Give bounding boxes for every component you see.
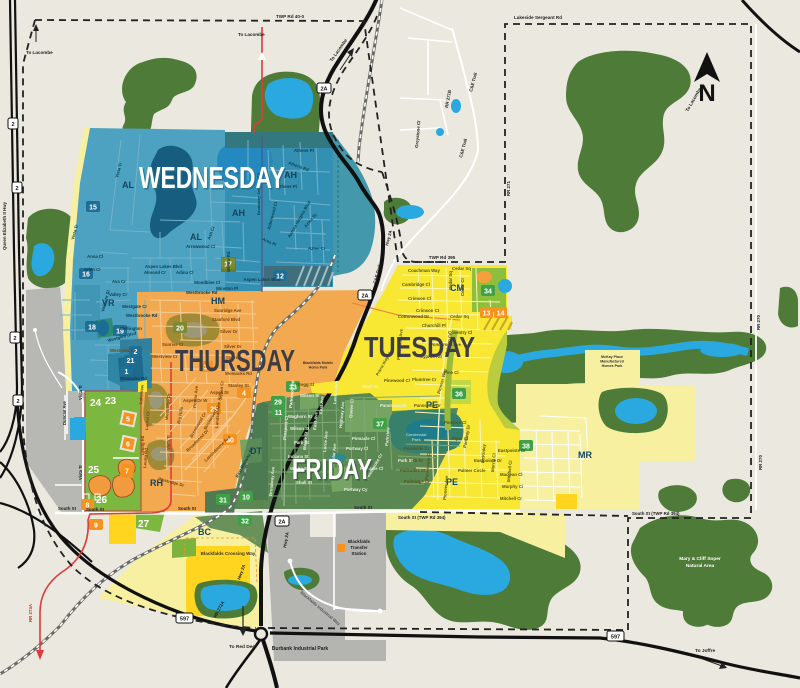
svg-text:Silver Dr: Silver Dr	[220, 329, 238, 334]
svg-text:Wilson St: Wilson St	[290, 426, 310, 431]
svg-text:597: 597	[180, 617, 189, 623]
svg-text:Crimson Cl: Crimson Cl	[408, 296, 431, 301]
svg-text:Portway Cl: Portway Cl	[346, 446, 368, 451]
svg-text:Cottonwood Dr: Cottonwood Dr	[398, 314, 429, 319]
svg-text:To Lacombe: To Lacombe	[238, 32, 265, 37]
svg-text:27: 27	[138, 519, 150, 530]
svg-text:South St: South St	[58, 506, 77, 511]
svg-text:Coachman Way: Coachman Way	[408, 268, 440, 273]
svg-text:20: 20	[176, 326, 184, 333]
svg-text:Cambridge Cl: Cambridge Cl	[402, 282, 430, 287]
svg-text:34: 34	[484, 289, 492, 296]
svg-text:Anna Cl: Anna Cl	[87, 254, 103, 259]
svg-text:Cedar Sq: Cedar Sq	[452, 266, 471, 271]
svg-text:TWP Rd 395: TWP Rd 395	[429, 255, 456, 260]
svg-text:Lakeside Sergeant Rd: Lakeside Sergeant Rd	[514, 15, 562, 20]
svg-text:Wellington: Wellington	[120, 326, 142, 331]
svg-text:Stanley St: Stanley St	[228, 383, 249, 388]
svg-text:Cedar Sq: Cedar Sq	[448, 271, 453, 290]
svg-text:South St: South St	[86, 507, 105, 512]
svg-text:Blackfalds Mobile: Blackfalds Mobile	[303, 361, 333, 365]
svg-text:7: 7	[125, 469, 129, 476]
svg-text:Palisades St: Palisades St	[400, 468, 426, 473]
svg-text:Pinetree Cl: Pinetree Cl	[444, 420, 466, 425]
svg-text:Burbank Industrial Park: Burbank Industrial Park	[272, 646, 329, 652]
svg-text:Westview Cr: Westview Cr	[110, 348, 136, 353]
svg-text:AH: AH	[232, 208, 245, 218]
svg-text:23: 23	[105, 396, 117, 407]
svg-text:MR: MR	[578, 450, 592, 460]
svg-text:Eastpointe Dr: Eastpointe Dr	[474, 458, 502, 463]
svg-text:Willow Rd: Willow Rd	[226, 251, 231, 272]
svg-text:Panorama Dr: Panorama Dr	[380, 403, 407, 408]
svg-text:Sunridge Ave: Sunridge Ave	[214, 308, 242, 313]
svg-text:11: 11	[275, 410, 283, 417]
svg-text:2: 2	[16, 399, 19, 405]
svg-text:36: 36	[455, 392, 463, 399]
svg-text:FRIDAY: FRIDAY	[292, 454, 372, 486]
svg-text:29: 29	[274, 400, 282, 407]
svg-text:10: 10	[242, 495, 250, 502]
svg-text:16: 16	[82, 272, 90, 279]
svg-text:9: 9	[94, 523, 98, 530]
svg-text:Shull St: Shull St	[362, 384, 379, 389]
svg-text:THURSDAY: THURSDAY	[175, 343, 295, 378]
svg-text:N: N	[698, 80, 715, 107]
svg-text:13: 13	[483, 311, 491, 318]
svg-text:Blackfalds Crossing Way: Blackfalds Crossing Way	[201, 551, 256, 556]
svg-text:Queen Elizabeth II Hwy: Queen Elizabeth II Hwy	[2, 201, 7, 250]
svg-text:Cedar Sq: Cedar Sq	[450, 314, 469, 319]
svg-text:Leung Rd: Leung Rd	[140, 435, 145, 455]
svg-text:25: 25	[88, 465, 100, 476]
svg-text:South St (TWP Rd 394): South St (TWP Rd 394)	[632, 511, 680, 516]
svg-text:Winston Pl: Winston Pl	[216, 286, 238, 291]
svg-text:WEDNESDAY: WEDNESDAY	[139, 160, 285, 195]
svg-text:14: 14	[497, 311, 505, 318]
svg-text:Crimson Ct: Crimson Ct	[416, 308, 440, 313]
svg-text:RR 270: RR 270	[758, 455, 763, 470]
svg-text:15: 15	[89, 205, 97, 212]
svg-text:HM: HM	[211, 296, 225, 306]
svg-text:Gregg St: Gregg St	[296, 382, 315, 387]
svg-text:Pinewood Cl: Pinewood Cl	[384, 378, 410, 383]
svg-text:RR 271: RR 271	[506, 181, 511, 196]
svg-text:2A: 2A	[320, 87, 327, 93]
svg-text:Almond Cr: Almond Cr	[144, 270, 166, 275]
svg-text:4: 4	[242, 391, 246, 398]
svg-text:Park St: Park St	[398, 458, 413, 463]
svg-text:2: 2	[11, 122, 14, 128]
svg-text:AL: AL	[122, 180, 134, 190]
svg-text:Transfer: Transfer	[350, 545, 368, 550]
svg-text:Vista Tr: Vista Tr	[166, 435, 171, 450]
svg-text:Adina Cl: Adina Cl	[176, 270, 193, 275]
svg-text:5: 5	[126, 417, 130, 424]
svg-text:Athens Pl: Athens Pl	[294, 148, 314, 153]
svg-text:Ava Cr: Ava Cr	[112, 279, 126, 284]
svg-text:TWP Rd 40-0: TWP Rd 40-0	[276, 14, 304, 19]
svg-text:Panorama Dr: Panorama Dr	[414, 403, 441, 408]
svg-text:Duncan Ave: Duncan Ave	[62, 400, 67, 425]
svg-text:To Joffre: To Joffre	[695, 648, 715, 654]
svg-text:Westbrooke Rd: Westbrooke Rd	[126, 313, 158, 318]
svg-text:Pondside Cr: Pondside Cr	[404, 446, 430, 451]
svg-text:Aspen Lakes Blvd: Aspen Lakes Blvd	[243, 277, 280, 282]
svg-text:2: 2	[13, 336, 16, 342]
svg-text:Blackfalds: Blackfalds	[348, 539, 371, 544]
svg-text:Home Park: Home Park	[309, 366, 328, 370]
svg-text:2: 2	[15, 186, 18, 192]
svg-text:Manufactured: Manufactured	[600, 360, 624, 364]
svg-text:Aspen Lakes Blvd: Aspen Lakes Blvd	[145, 264, 182, 269]
svg-text:Station: Station	[352, 551, 367, 556]
svg-text:37: 37	[376, 422, 384, 429]
svg-text:26: 26	[96, 495, 108, 506]
svg-text:BC: BC	[198, 527, 211, 537]
svg-text:2A: 2A	[361, 294, 368, 300]
svg-text:TUESDAY: TUESDAY	[364, 332, 475, 364]
svg-text:Stanford Blvd: Stanford Blvd	[212, 317, 241, 322]
svg-text:1: 1	[125, 369, 129, 376]
svg-text:Arlen Cl: Arlen Cl	[84, 267, 100, 272]
svg-text:RR 273A: RR 273A	[28, 603, 33, 622]
svg-text:Murphy Ci: Murphy Ci	[502, 484, 523, 489]
svg-text:Westbrooke Rd: Westbrooke Rd	[186, 290, 218, 295]
svg-text:Palmer Circle: Palmer Circle	[458, 468, 486, 473]
svg-text:Mitchell Cr: Mitchell Cr	[500, 496, 522, 501]
svg-text:Aztec Cr: Aztec Cr	[308, 246, 326, 251]
svg-text:2A: 2A	[278, 520, 285, 526]
svg-text:32: 32	[241, 519, 249, 526]
svg-text:Pinnacle Cl: Pinnacle Cl	[352, 436, 375, 441]
svg-text:Homes Park: Homes Park	[602, 364, 623, 368]
svg-text:Westview Cr: Westview Cr	[152, 354, 178, 359]
svg-text:Plumtree Cr: Plumtree Cr	[412, 377, 437, 382]
svg-text:To Red Deer: To Red Deer	[229, 644, 257, 650]
svg-text:Arrowwood Cl: Arrowwood Cl	[186, 244, 215, 249]
svg-text:McKay Place: McKay Place	[601, 355, 623, 359]
svg-text:Valley Cr: Valley Cr	[109, 292, 127, 297]
svg-text:South St: South St	[354, 505, 373, 510]
svg-text:Churchill Pl: Churchill Pl	[422, 323, 446, 328]
svg-text:18: 18	[88, 325, 96, 332]
svg-text:24: 24	[90, 398, 102, 409]
svg-text:21: 21	[127, 358, 135, 365]
svg-text:597: 597	[611, 635, 620, 641]
svg-text:6: 6	[126, 442, 130, 449]
svg-text:RR 270: RR 270	[756, 315, 761, 330]
svg-text:South St: South St	[178, 506, 197, 511]
svg-text:Portway Cy: Portway Cy	[344, 487, 368, 492]
svg-text:Cedar Cr: Cedar Cr	[460, 278, 465, 296]
svg-text:Mary & Cliff Soper: Mary & Cliff Soper	[679, 556, 721, 562]
svg-text:Park: Park	[412, 437, 421, 442]
svg-text:Eastpointe Dr: Eastpointe Dr	[498, 448, 526, 453]
svg-text:Woodbine Cl: Woodbine Cl	[194, 280, 220, 285]
svg-text:To Lacombe: To Lacombe	[26, 50, 53, 55]
svg-text:Waghorn St: Waghorn St	[288, 414, 313, 419]
svg-text:South St (TWP Rd 394): South St (TWP Rd 394)	[398, 515, 446, 520]
svg-text:Vista Tr: Vista Tr	[78, 385, 83, 400]
svg-text:31: 31	[219, 498, 227, 505]
svg-text:Westgate Cr: Westgate Cr	[122, 304, 147, 309]
svg-text:Womacks Rd: Womacks Rd	[120, 376, 147, 381]
svg-text:Vista Tr: Vista Tr	[78, 465, 83, 480]
svg-text:AL: AL	[190, 232, 202, 242]
svg-text:Wilson St: Wilson St	[300, 393, 320, 398]
svg-text:Natural Area: Natural Area	[686, 563, 715, 569]
